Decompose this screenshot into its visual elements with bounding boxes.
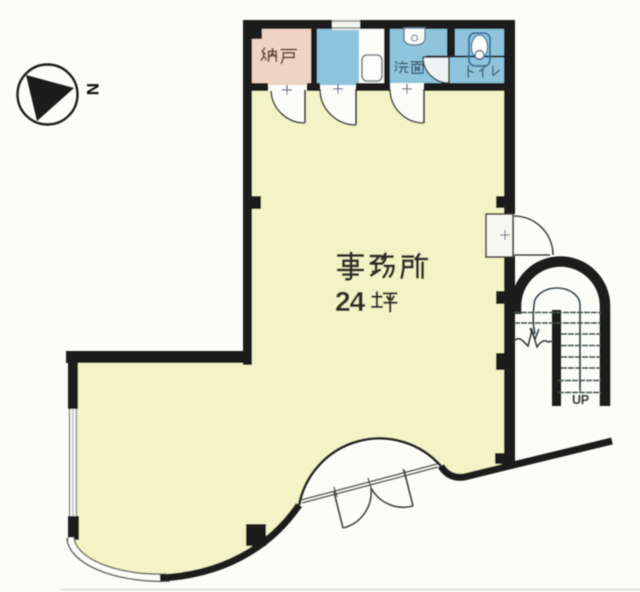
svg-text:24: 24 bbox=[335, 286, 366, 317]
svg-text:N: N bbox=[83, 83, 102, 95]
svg-text:UP: UP bbox=[572, 393, 589, 407]
